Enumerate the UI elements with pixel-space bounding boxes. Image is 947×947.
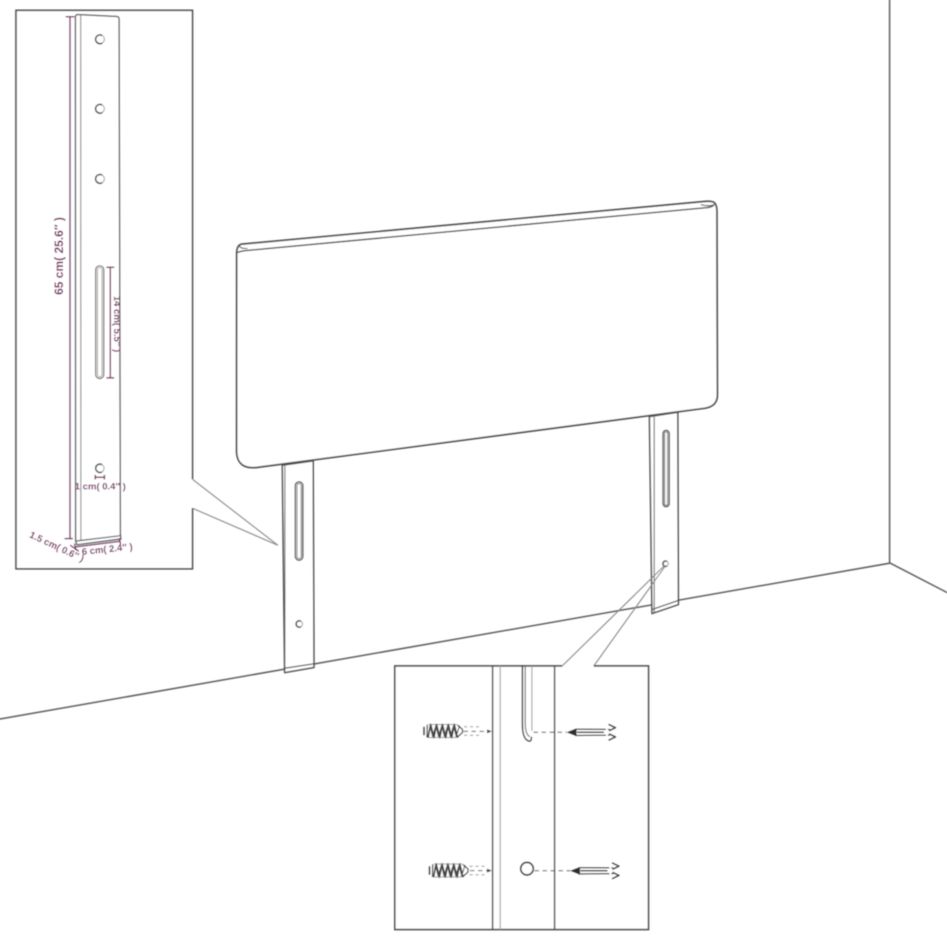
svg-text:65 cm( 25.6″ ): 65 cm( 25.6″ ) [52, 217, 66, 295]
svg-text:1 cm( 0.4″ ): 1 cm( 0.4″ ) [75, 481, 126, 492]
svg-text:14 cm( 5.5″ ): 14 cm( 5.5″ ) [111, 296, 122, 352]
